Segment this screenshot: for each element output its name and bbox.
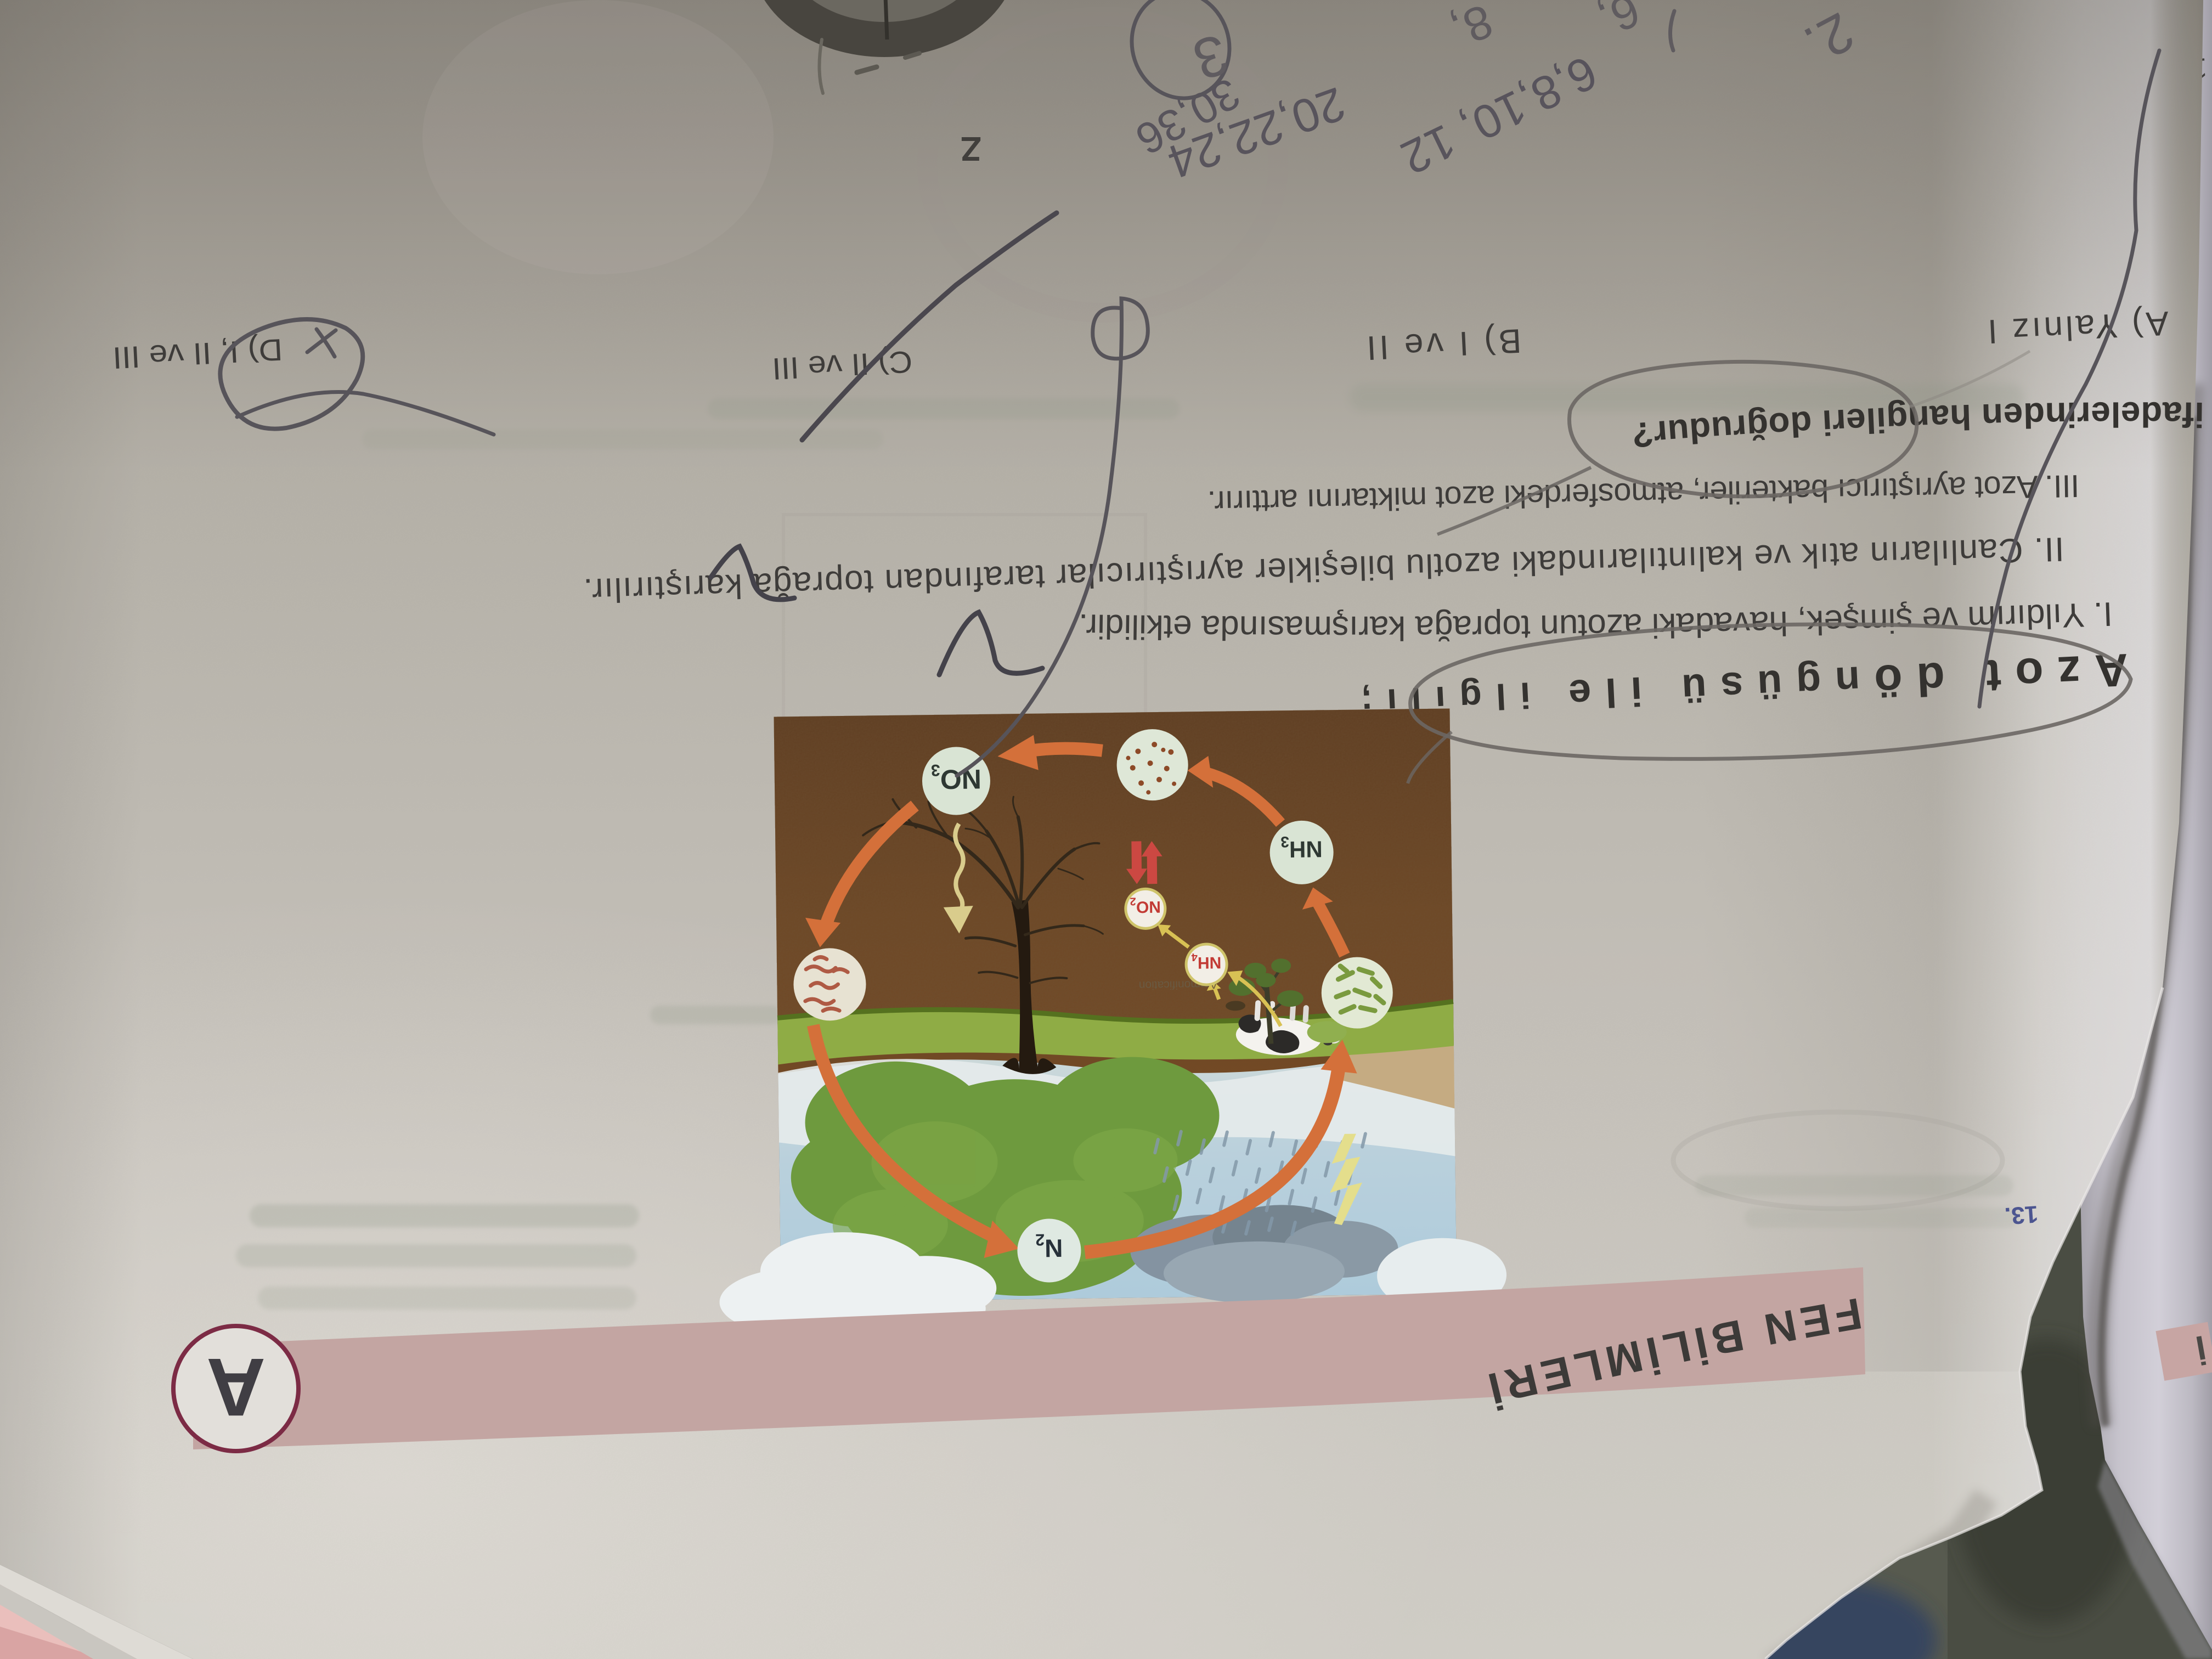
svg-text:Z: Z [961, 129, 981, 167]
svg-text:13.: 13. [2004, 1200, 2039, 1229]
svg-text:A: A [206, 1341, 266, 1434]
